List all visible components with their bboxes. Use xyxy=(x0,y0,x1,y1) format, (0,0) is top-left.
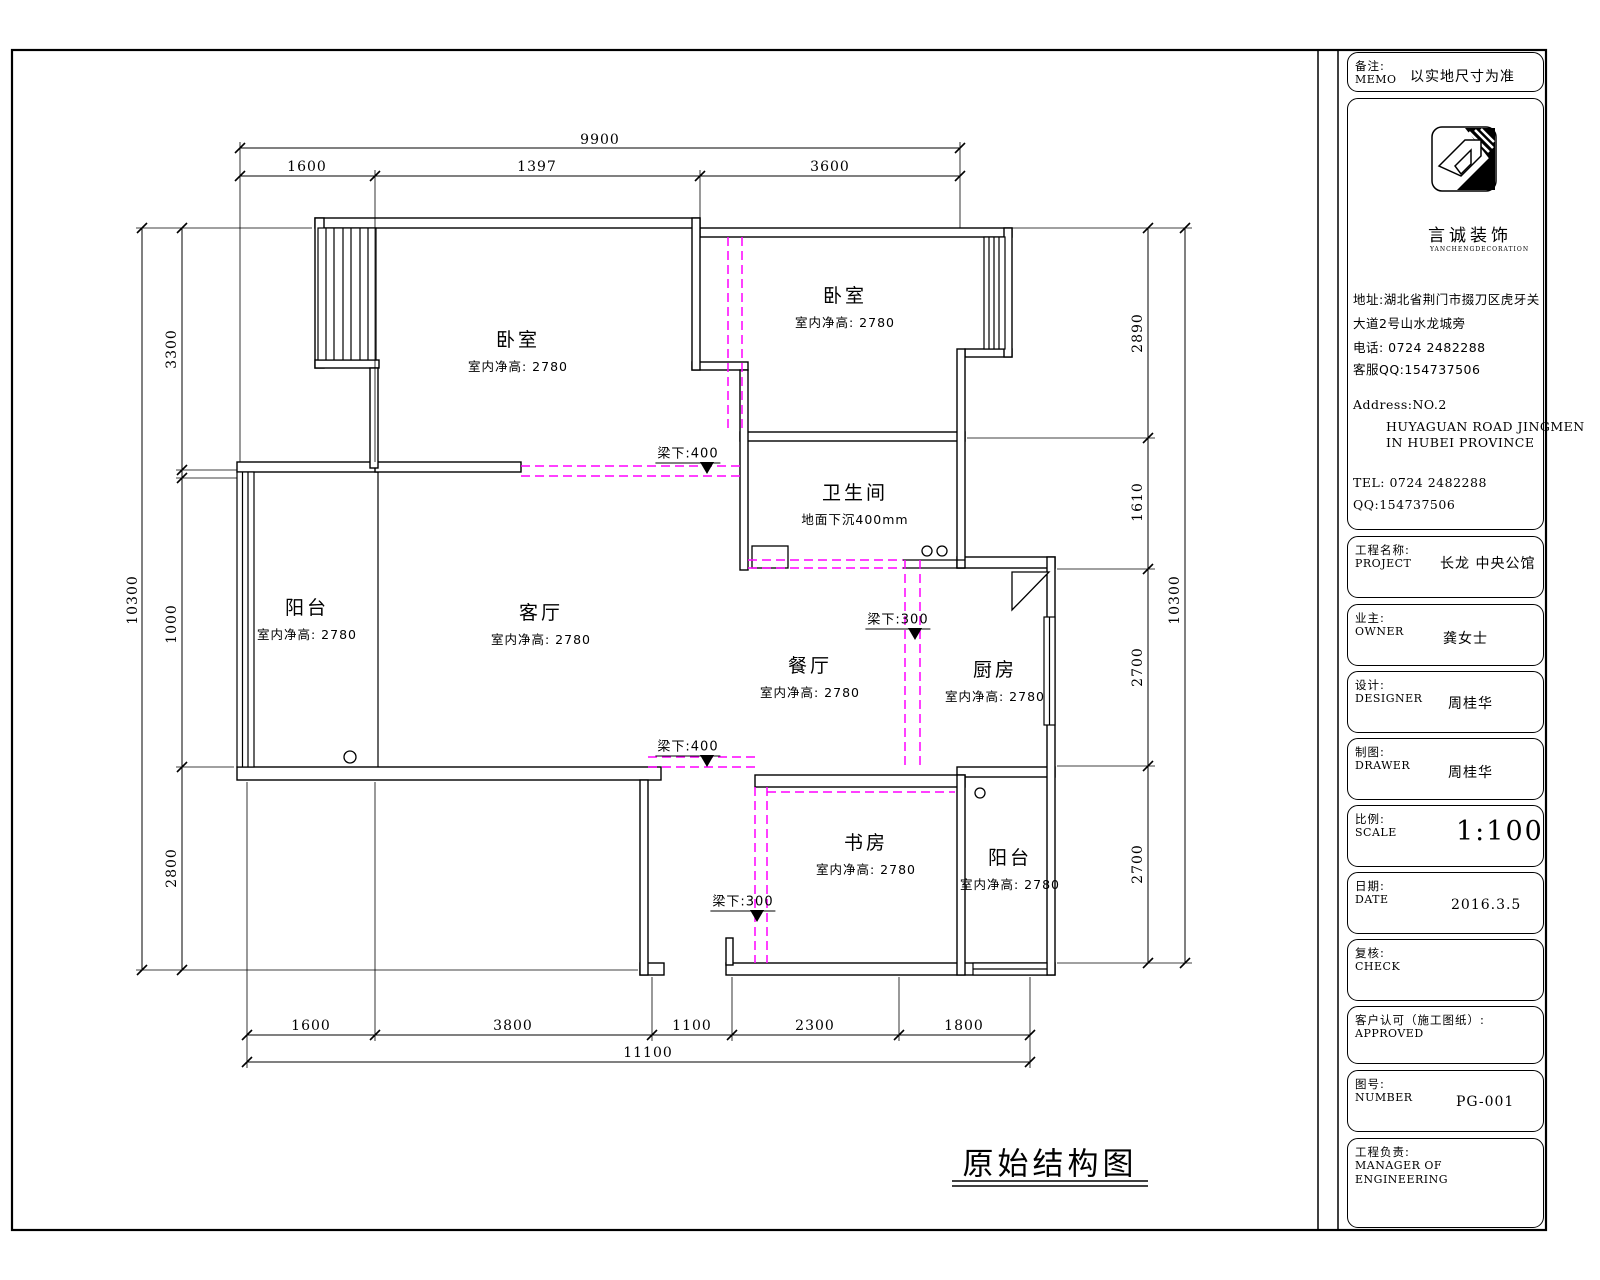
dim-right-total: 10300 xyxy=(1167,575,1183,625)
dim-left-total: 10300 xyxy=(125,575,141,625)
titleblock-scale: 比例: SCALE 1:100 xyxy=(1347,805,1544,867)
dim-bottom-5: 1800 xyxy=(944,1018,984,1034)
dim-left-3: 2800 xyxy=(164,848,180,888)
room-label-dining-room: 餐厅 室内净高: 2780 xyxy=(760,651,860,701)
titleblock-check: 复核: CHECK xyxy=(1347,939,1544,1001)
dim-left-1: 3300 xyxy=(164,329,180,369)
room-label-bedroom-left: 卧室 室内净高: 2780 xyxy=(468,325,568,375)
dim-bottom-4: 2300 xyxy=(795,1018,835,1034)
beam-label: 梁下:300 xyxy=(865,609,930,630)
cad-sheet: 卧室 室内净高: 2780 卧室 室内净高: 2780 卫生间 地面下沉400m… xyxy=(0,0,1600,1280)
dim-top-1: 1600 xyxy=(287,159,327,175)
room-label-balcony-left: 阳台 室内净高: 2780 xyxy=(257,593,357,643)
company-phone: 电话: 0724 2482288 xyxy=(1353,337,1486,356)
dim-right-3: 2700 xyxy=(1130,647,1146,687)
dim-bottom-3: 1100 xyxy=(672,1018,712,1034)
company-name: 言诚装饰 xyxy=(1428,221,1512,246)
beam-label: 梁下:400 xyxy=(655,443,720,464)
room-label-study: 书房 室内净高: 2780 xyxy=(816,828,916,878)
titleblock-approved: 客户认可（施工图纸）: APPROVED xyxy=(1347,1006,1544,1064)
dim-left-2: 1000 xyxy=(164,604,180,644)
company-address-2: 大道2号山水龙城旁 xyxy=(1353,313,1465,332)
titleblock-company: 言诚装饰 YANCHENGDECORATION 地址:湖北省荆门市掇刀区虎牙关 … xyxy=(1347,98,1544,530)
titleblock-designer: 设计: DESIGNER 周桂华 xyxy=(1347,671,1544,733)
dim-bottom-total: 11100 xyxy=(623,1045,673,1061)
dim-right-4: 2700 xyxy=(1130,844,1146,884)
company-qq: 客服QQ:154737506 xyxy=(1353,359,1480,378)
titleblock-owner: 业主: OWNER 龚女士 xyxy=(1347,604,1544,666)
titleblock-project: 工程名称: PROJECT 长龙 中央公馆 xyxy=(1347,536,1544,598)
dim-top-3: 3600 xyxy=(810,159,850,175)
fixtures xyxy=(344,546,1049,798)
company-tel-en: TEL: 0724 2482288 xyxy=(1353,475,1487,490)
door-swing xyxy=(1012,572,1049,610)
room-label-kitchen: 厨房 室内净高: 2780 xyxy=(945,655,1045,705)
company-address-en-3: IN HUBEI PROVINCE xyxy=(1386,435,1534,450)
company-qq-en: QQ:154737506 xyxy=(1353,497,1455,512)
dim-bottom-1: 1600 xyxy=(291,1018,331,1034)
company-address-en-1: Address:NO.2 xyxy=(1353,397,1447,412)
titleblock-number: 图号: NUMBER PG-001 xyxy=(1347,1070,1544,1132)
room-label-balcony-bottom: 阳台 室内净高: 2780 xyxy=(960,843,1060,893)
beam-label: 梁下:300 xyxy=(710,891,775,912)
company-address-1: 地址:湖北省荆门市掇刀区虎牙关 xyxy=(1353,289,1540,308)
dim-right-2: 1610 xyxy=(1130,482,1146,522)
titleblock-date: 日期: DATE 2016.3.5 xyxy=(1347,872,1544,934)
dim-top-total: 9900 xyxy=(580,132,620,148)
room-label-bedroom-right: 卧室 室内净高: 2780 xyxy=(795,281,895,331)
dim-top-2: 1397 xyxy=(517,159,557,175)
drawing-title: 原始结构图 xyxy=(963,1139,1138,1184)
company-logo xyxy=(1431,126,1497,192)
titleblock-memo: 备注: MEMO 以实地尺寸为准 xyxy=(1347,52,1544,92)
beam-label: 梁下:400 xyxy=(655,736,720,757)
dim-bottom-2: 3800 xyxy=(493,1018,533,1034)
titleblock-drawer: 制图: DRAWER 周桂华 xyxy=(1347,738,1544,800)
company-name-en: YANCHENGDECORATION xyxy=(1430,246,1529,253)
dim-right-1: 2890 xyxy=(1130,313,1146,353)
company-address-en-2: HUYAGUAN ROAD JINGMEN xyxy=(1386,419,1585,434)
titleblock-manager: 工程负责: MANAGER OF ENGINEERING xyxy=(1347,1138,1544,1228)
room-label-living-room: 客厅 室内净高: 2780 xyxy=(491,598,591,648)
room-label-bathroom: 卫生间 地面下沉400mm xyxy=(801,478,908,528)
